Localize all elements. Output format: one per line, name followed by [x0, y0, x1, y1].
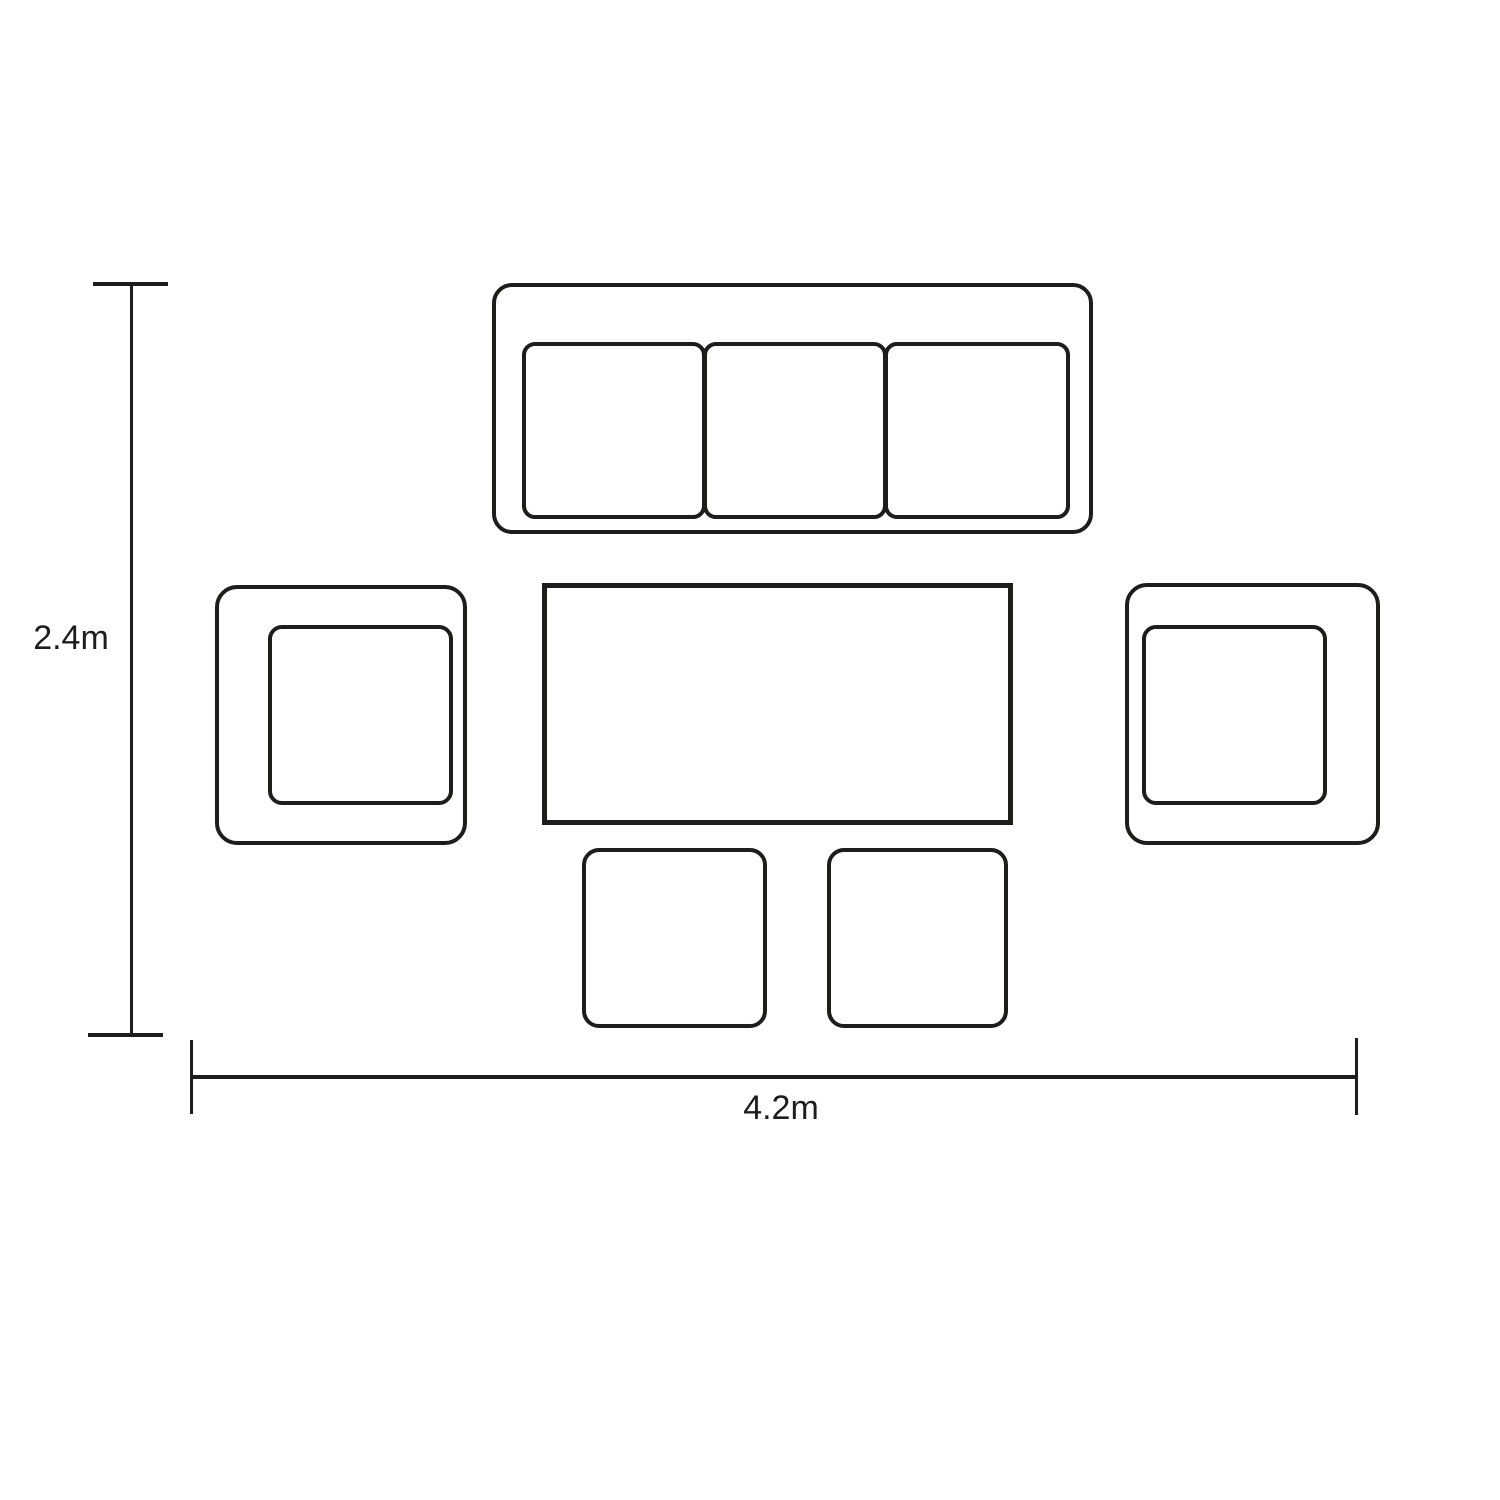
height-dimension-line — [130, 284, 133, 1036]
armchair-left-seat — [268, 625, 453, 805]
stool-right-outline — [827, 848, 1008, 1028]
width-dimension-cap-right — [1355, 1038, 1358, 1115]
furniture-layout-diagram: 2.4m 4.2m — [0, 0, 1500, 1500]
height-dimension-cap-bottom — [88, 1033, 163, 1037]
width-dimension-line — [192, 1075, 1358, 1079]
armchair-right-seat — [1142, 625, 1327, 805]
sofa-cushion-1 — [522, 342, 706, 519]
sofa-cushion-3 — [884, 342, 1070, 519]
stool-left-outline — [582, 848, 767, 1028]
table-outline — [542, 583, 1013, 825]
height-dimension-label: 2.4m — [21, 621, 121, 655]
width-dimension-label: 4.2m — [731, 1091, 831, 1125]
sofa-cushion-2 — [703, 342, 887, 519]
